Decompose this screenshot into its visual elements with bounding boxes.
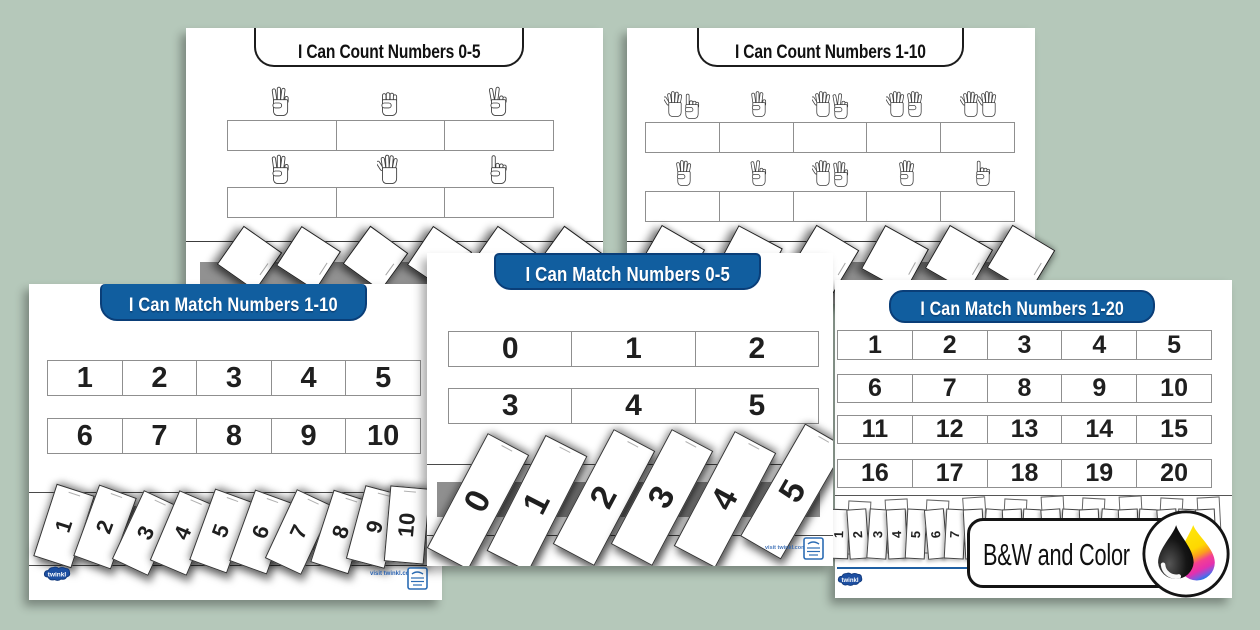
svg-text:twinkl: twinkl <box>841 578 858 584</box>
svg-text:twinkl: twinkl <box>48 572 67 579</box>
